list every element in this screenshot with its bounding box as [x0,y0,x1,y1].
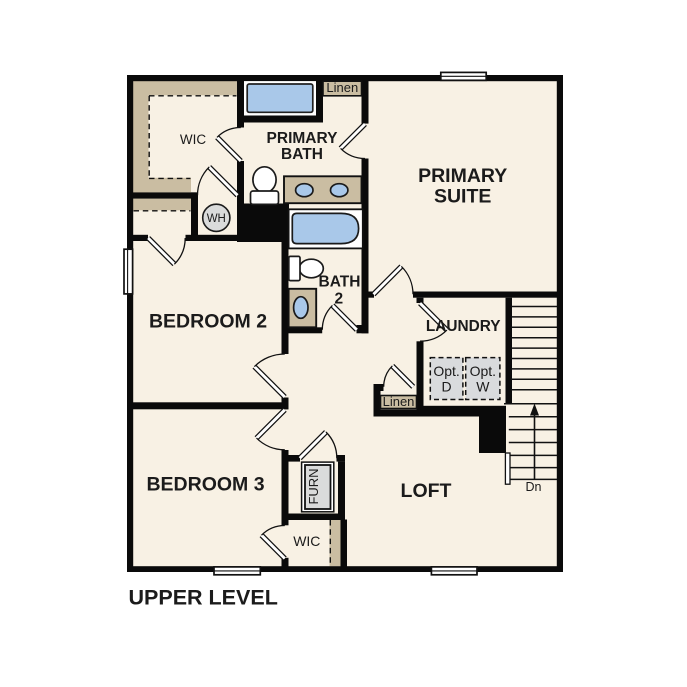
svg-text:SUITE: SUITE [434,186,491,208]
svg-text:W: W [476,379,490,395]
svg-text:PRIMARY: PRIMARY [267,130,339,147]
svg-text:WH: WH [207,213,226,225]
svg-text:WIC: WIC [293,533,320,549]
svg-text:UPPER LEVEL: UPPER LEVEL [129,586,278,610]
svg-text:BEDROOM 2: BEDROOM 2 [149,311,267,333]
svg-text:Opt.: Opt. [433,363,459,379]
svg-text:BATH: BATH [319,273,361,290]
svg-text:BEDROOM 3: BEDROOM 3 [146,474,264,496]
svg-text:D: D [442,379,452,395]
svg-text:LAUNDRY: LAUNDRY [426,318,501,335]
svg-text:Opt.: Opt. [470,363,496,379]
svg-text:PRIMARY: PRIMARY [418,165,507,187]
svg-text:BATH: BATH [281,146,323,163]
svg-text:LOFT: LOFT [401,480,452,502]
svg-text:Linen: Linen [326,80,358,95]
svg-text:Linen: Linen [383,394,415,409]
svg-text:Dn: Dn [526,480,542,494]
svg-text:WIC: WIC [180,132,206,147]
svg-text:2: 2 [334,291,343,308]
svg-text:FURN: FURN [306,468,321,504]
